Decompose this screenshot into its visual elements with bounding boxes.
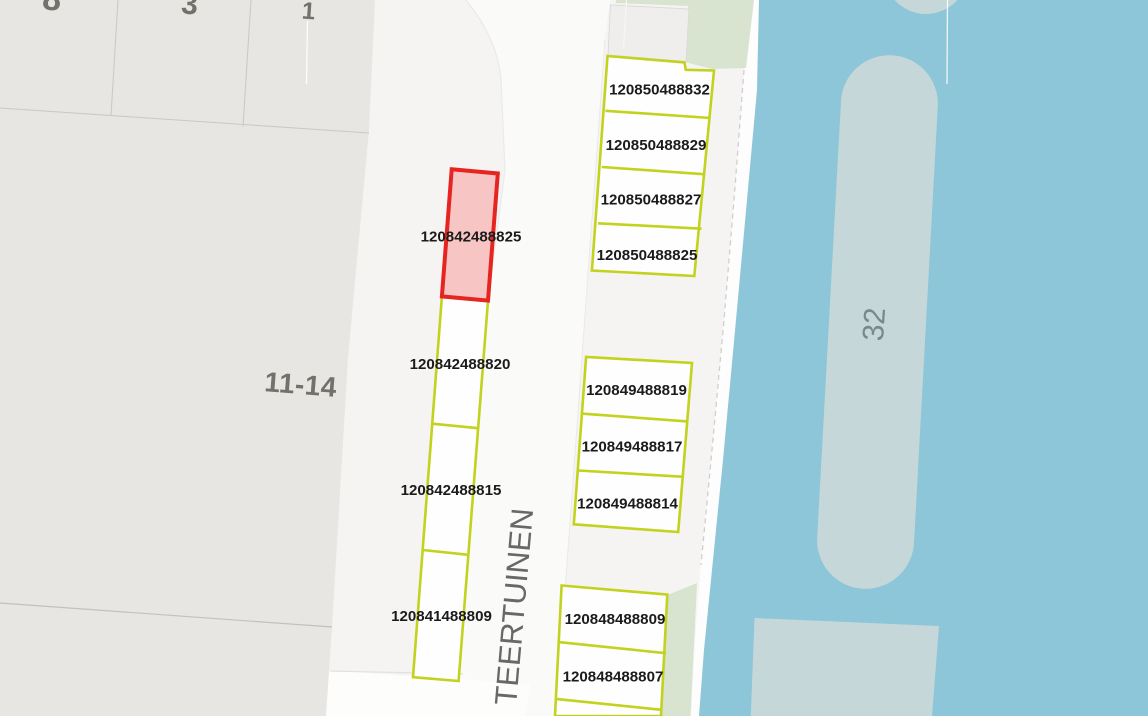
svg-text:120850488832: 120850488832 [609,81,710,98]
svg-text:120849488817: 120849488817 [582,438,683,455]
svg-text:3: 3 [180,0,199,22]
svg-text:120842488820: 120842488820 [410,356,511,373]
svg-text:1: 1 [301,0,316,25]
svg-text:120842488815: 120842488815 [401,482,502,499]
svg-text:120850488827: 120850488827 [601,191,702,208]
svg-text:120848488809: 120848488809 [565,611,666,628]
svg-text:32: 32 [857,307,892,343]
svg-text:120841488809: 120841488809 [391,608,492,625]
svg-text:120849488814: 120849488814 [577,495,678,512]
svg-text:120850488829: 120850488829 [606,137,707,154]
svg-text:120842488825: 120842488825 [421,229,522,246]
svg-text:120850488825: 120850488825 [597,247,698,264]
svg-text:120848488807: 120848488807 [563,668,664,685]
svg-text:8: 8 [41,0,63,19]
svg-text:120849488819: 120849488819 [586,382,687,399]
svg-text:11-14: 11-14 [263,366,338,403]
